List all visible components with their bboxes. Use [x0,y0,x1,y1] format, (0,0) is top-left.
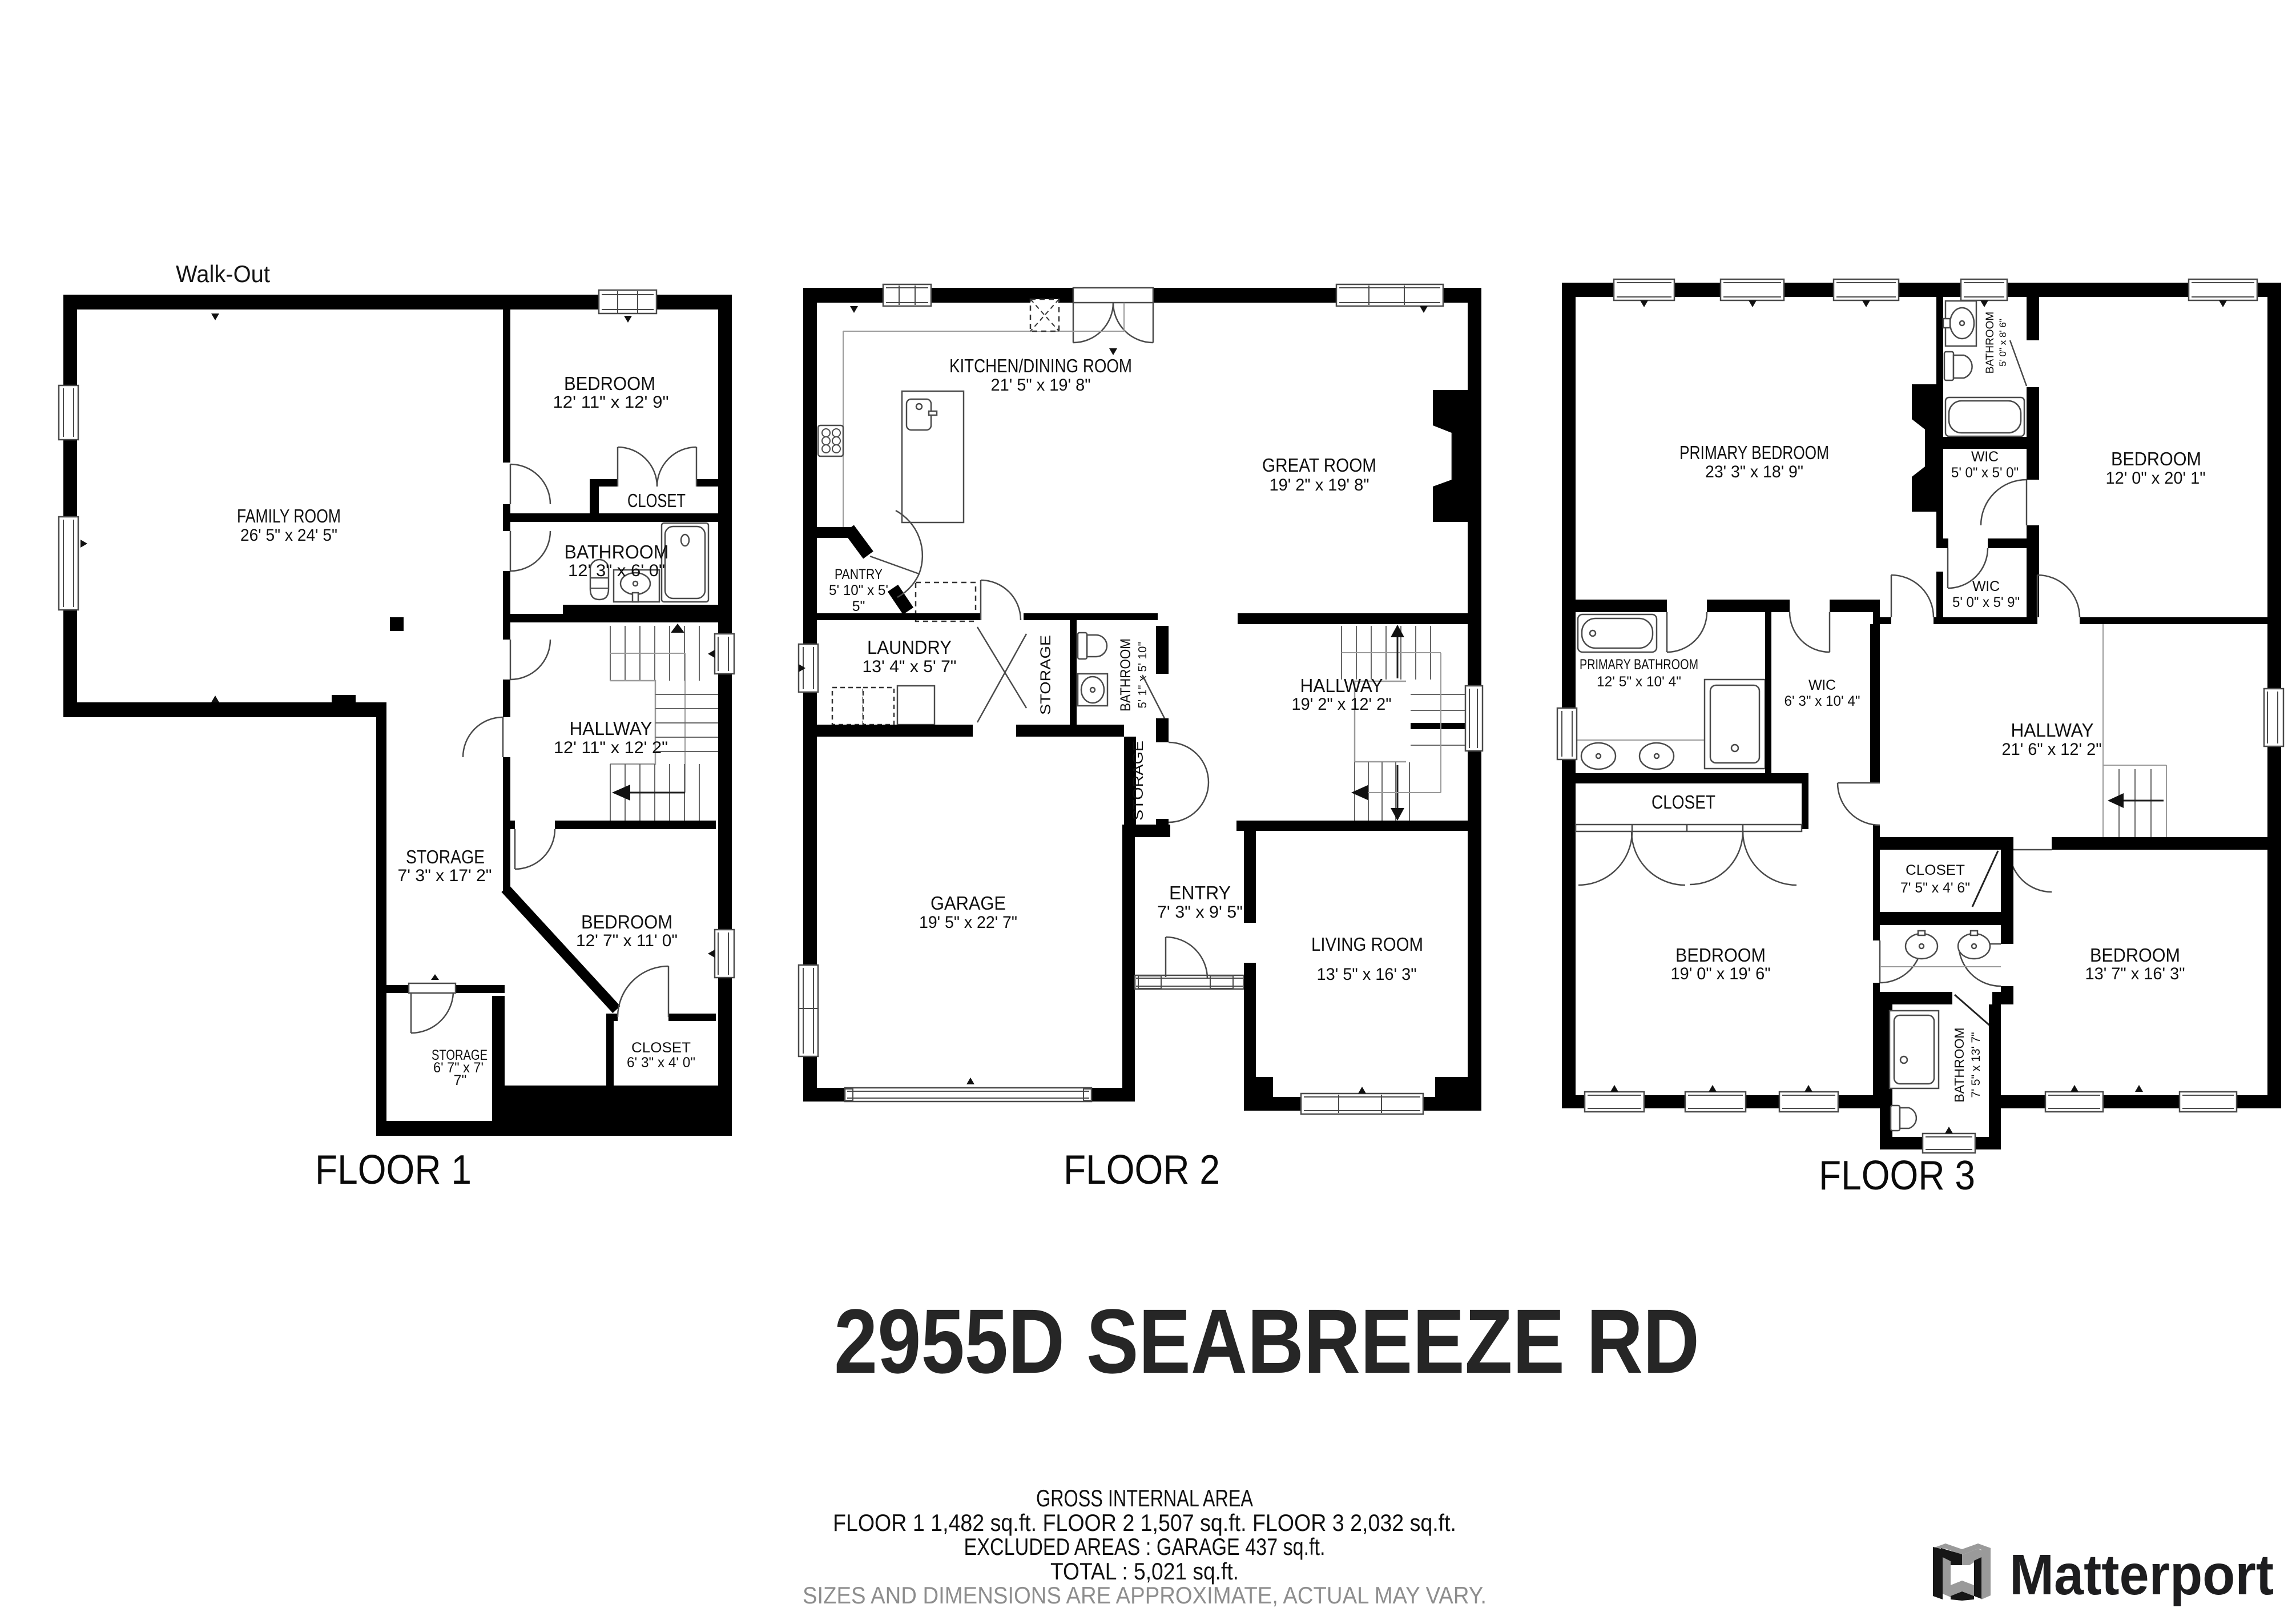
svg-text:19' 0" x 19' 6": 19' 0" x 19' 6" [1671,964,1771,983]
svg-text:12' 5" x 10' 4": 12' 5" x 10' 4" [1597,674,1681,690]
svg-text:FLOOR 3: FLOOR 3 [1819,1153,1975,1199]
svg-text:GREAT ROOM: GREAT ROOM [1262,455,1376,476]
svg-text:BATHROOM: BATHROOM [1952,1027,1967,1102]
svg-text:KITCHEN/DINING ROOM: KITCHEN/DINING ROOM [949,355,1132,376]
svg-text:TOTAL : 5,021 sq.ft.: TOTAL : 5,021 sq.ft. [1050,1558,1239,1585]
svg-text:7' 3" x 17' 2": 7' 3" x 17' 2" [398,866,492,885]
svg-text:19' 2" x 19' 8": 19' 2" x 19' 8" [1270,476,1369,495]
svg-text:CLOSET: CLOSET [1906,862,1965,878]
svg-text:SIZES AND DIMENSIONS ARE APPRO: SIZES AND DIMENSIONS ARE APPROXIMATE, AC… [803,1582,1487,1609]
svg-text:12' 7" x 11' 0": 12' 7" x 11' 0" [576,931,678,950]
svg-text:BATHROOM: BATHROOM [1984,312,1996,373]
svg-text:WIC: WIC [1972,578,2000,594]
svg-text:26' 5" x 24' 5": 26' 5" x 24' 5" [240,526,337,545]
svg-text:BEDROOM: BEDROOM [2090,944,2180,966]
svg-text:Matterport: Matterport [2009,1543,2274,1607]
svg-text:STORAGE: STORAGE [1130,741,1146,821]
svg-text:STORAGE: STORAGE [406,846,485,867]
svg-text:12' 3" x 6' 0": 12' 3" x 6' 0" [568,561,665,580]
svg-text:BEDROOM: BEDROOM [1675,944,1766,966]
svg-text:FLOOR 1 1,482 sq.ft. FLOOR: FLOOR 1 1,482 sq.ft. FLOOR 2 1,507 sq.ft… [833,1509,1456,1536]
svg-text:7' 5" x 13' 7": 7' 5" x 13' 7" [1969,1032,1983,1098]
svg-text:5' 0" x 5' 9": 5' 0" x 5' 9" [1952,594,2020,610]
svg-text:BEDROOM: BEDROOM [581,911,672,932]
svg-text:BEDROOM: BEDROOM [2111,448,2201,469]
svg-text:21' 5" x 19' 8": 21' 5" x 19' 8" [991,376,1091,395]
svg-text:EXCLUDED AREAS : GARAGE 437 s: EXCLUDED AREAS : GARAGE 437 sq.ft. [964,1533,1326,1560]
svg-text:HALLWAY: HALLWAY [2011,719,2094,741]
svg-text:FLOOR 2: FLOOR 2 [1064,1147,1220,1193]
svg-text:7": 7" [454,1072,467,1088]
svg-text:BEDROOM: BEDROOM [564,373,655,394]
svg-text:13' 5" x 16' 3": 13' 5" x 16' 3" [1317,965,1417,984]
svg-text:CLOSET: CLOSET [1651,791,1715,813]
svg-text:19' 5" x 22' 7": 19' 5" x 22' 7" [919,913,1017,932]
svg-text:7' 5" x 4' 6": 7' 5" x 4' 6" [1900,880,1970,896]
svg-text:FAMILY ROOM: FAMILY ROOM [237,505,341,526]
svg-text:7' 3" x 9' 5": 7' 3" x 9' 5" [1157,903,1243,922]
svg-text:5' 10" x 5': 5' 10" x 5' [829,582,888,598]
svg-text:HALLWAY: HALLWAY [570,718,652,739]
svg-text:12' 0" x 20' 1": 12' 0" x 20' 1" [2106,469,2206,488]
svg-text:PANTRY: PANTRY [835,566,883,582]
svg-text:WIC: WIC [1971,449,1999,465]
svg-text:21' 6" x 12' 2": 21' 6" x 12' 2" [2002,740,2102,759]
svg-text:CLOSET: CLOSET [631,1040,691,1056]
svg-text:FLOOR 1: FLOOR 1 [315,1147,472,1193]
svg-text:WIC: WIC [1808,677,1836,693]
svg-text:GROSS INTERNAL AREA: GROSS INTERNAL AREA [1036,1485,1253,1512]
svg-text:CLOSET: CLOSET [627,490,686,511]
svg-text:HALLWAY: HALLWAY [1300,675,1383,696]
svg-text:6' 3" x 4' 0": 6' 3" x 4' 0" [627,1055,695,1071]
svg-text:5' 0" x 5' 0": 5' 0" x 5' 0" [1951,465,2019,481]
svg-text:STORAGE: STORAGE [1038,635,1054,715]
svg-text:PRIMARY BATHROOM: PRIMARY BATHROOM [1580,657,1698,673]
svg-text:LIVING ROOM: LIVING ROOM [1311,934,1423,955]
svg-text:LAUNDRY: LAUNDRY [867,637,952,658]
svg-text:Walk-Out: Walk-Out [176,260,270,287]
svg-text:12' 11" x 12' 9": 12' 11" x 12' 9" [553,393,669,412]
svg-text:13' 4" x 5' 7": 13' 4" x 5' 7" [863,657,957,676]
svg-text:PRIMARY BEDROOM: PRIMARY BEDROOM [1679,442,1829,463]
svg-text:2955D SEABREEZE RD: 2955D SEABREEZE RD [834,1290,1699,1392]
svg-text:13' 7" x 16' 3": 13' 7" x 16' 3" [2085,964,2185,983]
svg-text:BATHROOM: BATHROOM [565,541,669,562]
svg-text:BATHROOM: BATHROOM [1118,638,1134,711]
svg-text:GARAGE: GARAGE [931,893,1006,914]
svg-text:5": 5" [852,598,865,614]
svg-text:23' 3" x 18' 9": 23' 3" x 18' 9" [1705,463,1803,481]
svg-text:6' 3" x 10' 4": 6' 3" x 10' 4" [1785,693,1860,709]
svg-text:12' 11" x 12' 2": 12' 11" x 12' 2" [554,738,668,757]
svg-text:ENTRY: ENTRY [1169,882,1231,903]
svg-text:5' 0" x 8' 6": 5' 0" x 8' 6" [1997,319,2008,367]
svg-text:19' 2" x 12' 2": 19' 2" x 12' 2" [1292,695,1392,714]
